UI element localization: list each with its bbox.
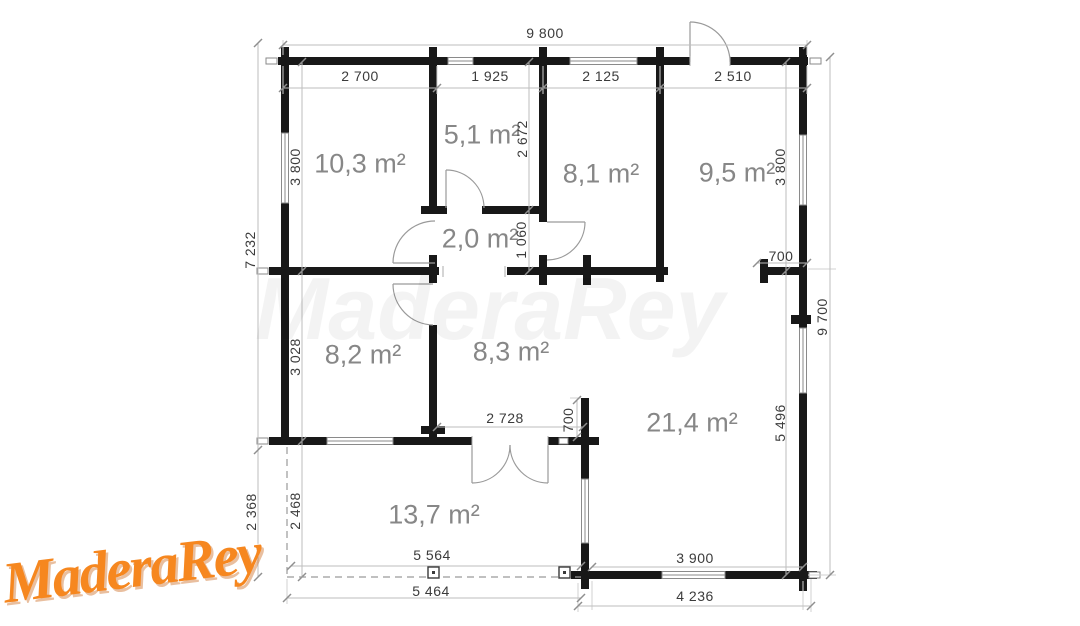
dim-right-stub: 700: [769, 248, 794, 264]
dim-top-seg3: 2 125: [582, 68, 620, 84]
room-label-8-1: 8,1 m²: [563, 159, 640, 190]
door-room-10-3: [393, 221, 435, 263]
cross-stub: [581, 579, 589, 589]
cross-stub: [429, 275, 437, 283]
dim-top-seg2: 1 925: [471, 68, 509, 84]
dim-right-upper: 3 800: [772, 148, 788, 186]
room-label-10-3: 10,3 m²: [314, 149, 406, 180]
corner-stub: [281, 47, 289, 57]
room-label-9-5: 9,5 m²: [699, 158, 776, 189]
cross-stub: [429, 47, 437, 57]
window-bottom: [662, 572, 725, 579]
room-label-8-3: 8,3 m²: [473, 337, 550, 368]
dim-hall-height: 1 060: [513, 221, 529, 259]
window-top-small: [448, 58, 473, 65]
dim-left-total: 7 232: [242, 231, 258, 269]
log-end-marker: [791, 315, 811, 324]
cross-stub: [583, 275, 591, 285]
dim-terrace-width-outer: 5 464: [412, 583, 450, 599]
window-top: [570, 58, 637, 65]
door-room-5-1: [446, 170, 484, 208]
room-label-13-7: 13,7 m²: [388, 500, 480, 531]
window-right-mid: [800, 328, 807, 393]
cross-stub: [539, 255, 547, 267]
room-label-2-0: 2,0 m²: [442, 224, 519, 255]
dim-terrace-width-inner: 5 564: [413, 547, 451, 563]
cross-stub: [583, 255, 591, 267]
dim-terrace-left-inner: 2 468: [287, 492, 303, 530]
door-room-8-2: [393, 284, 433, 325]
dim-top-total: 9 800: [526, 25, 564, 41]
window-bottom-left: [327, 438, 393, 445]
cross-stub: [269, 437, 281, 445]
floor-plan-image: MaderaRey 10,3 m² 5,1 m² 8,1 m² 9,5 m² 2…: [0, 0, 1080, 626]
dim-hall-upper: 2 672: [514, 120, 530, 158]
cross-stub: [656, 47, 664, 57]
dim-bottom-outer: 4 236: [676, 588, 714, 604]
terrace-french-doors: [472, 445, 548, 483]
room-label-5-1: 5,1 m²: [444, 120, 521, 151]
window-right-upper: [800, 135, 807, 205]
dim-right-lower: 5 496: [772, 404, 788, 442]
room-label-21-4: 21,4 m²: [646, 408, 738, 439]
cross-stub: [760, 275, 768, 283]
dim-top-seg1: 2 700: [341, 68, 379, 84]
cross-stub: [539, 47, 547, 57]
dim-left-upper: 3 800: [287, 148, 303, 186]
cross-stub: [571, 571, 581, 579]
dim-bottom-inner: 3 900: [676, 550, 714, 566]
cross-stub: [539, 275, 547, 285]
cross-stub: [421, 206, 447, 214]
cross-stub: [429, 255, 437, 267]
cross-stub: [589, 437, 599, 445]
entrance-door: [690, 22, 730, 62]
room-label-8-2: 8,2 m²: [325, 340, 402, 371]
dim-patio-side: 700: [560, 408, 576, 433]
door-room-8-1: [547, 222, 585, 260]
cross-stub: [269, 267, 281, 275]
extension-lines: [283, 40, 836, 612]
dim-right-total: 9 700: [814, 298, 830, 336]
dim-top-seg4: 2 510: [714, 68, 752, 84]
dim-left-lower: 3 028: [287, 338, 303, 376]
dim-patio-door-width: 2 728: [486, 410, 524, 426]
terrace-posts: [428, 567, 570, 578]
walls: [269, 47, 817, 591]
window-inner-wall: [582, 479, 589, 543]
